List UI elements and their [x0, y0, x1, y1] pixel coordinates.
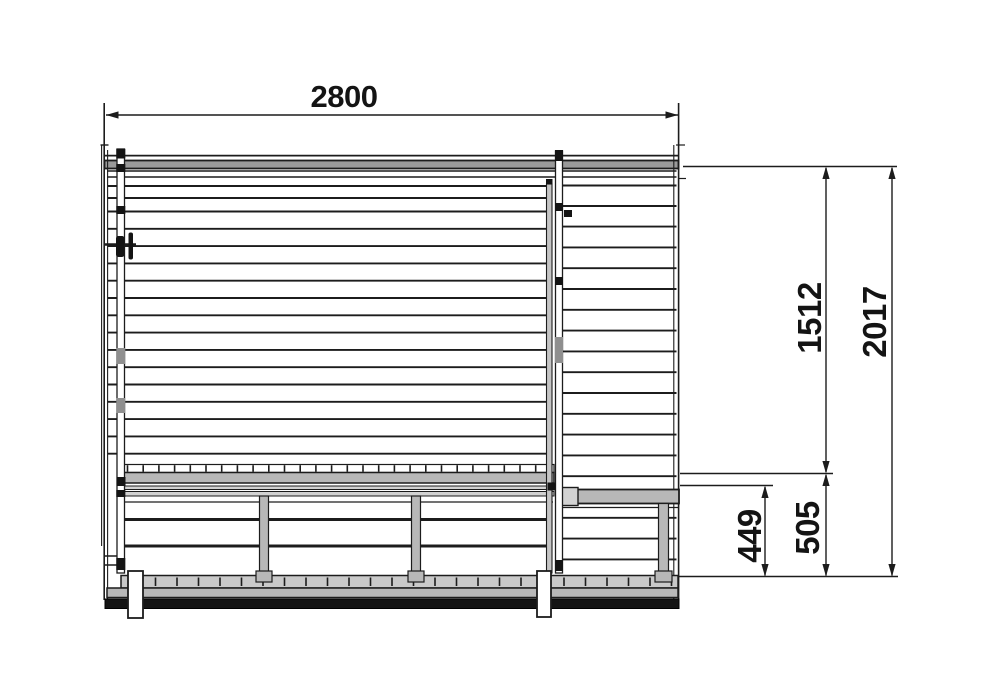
- railing-post-foot: [408, 571, 424, 582]
- bench-seat: [562, 490, 679, 504]
- sauna-elevation-page: 2800 1512 505 2017 449: [0, 0, 1000, 700]
- railing-attachment: [548, 483, 556, 491]
- bench-height-dimension-label: 449: [731, 509, 768, 563]
- foundation-post: [537, 571, 551, 617]
- upper-height-dimension-label: 1512: [791, 282, 828, 354]
- door-handle-icon: [116, 236, 125, 257]
- foundation-skid: [105, 599, 679, 609]
- bench-leg-foot: [655, 571, 672, 582]
- width-dimension-label: 2800: [311, 79, 378, 114]
- deck-boards: [121, 576, 678, 589]
- total-height-dimension-label: 2017: [856, 286, 893, 357]
- deck-rim-joist: [107, 588, 678, 598]
- terrace-deck: [105, 571, 679, 609]
- door-frame-board: [547, 184, 553, 573]
- railing-post: [260, 496, 269, 573]
- railing-post: [412, 496, 421, 573]
- railing-handrail: [121, 473, 554, 484]
- door-handle-icon: [129, 233, 134, 260]
- bench-end-cap: [562, 488, 578, 506]
- foundation-post: [128, 571, 143, 618]
- sauna-elevation-drawing: 2800 1512 505 2017 449: [0, 0, 1000, 700]
- bench-leg: [659, 504, 669, 573]
- railing-post-foot: [256, 571, 272, 582]
- railing-attachment: [117, 477, 126, 486]
- railing-height-dimension-label: 505: [789, 501, 826, 555]
